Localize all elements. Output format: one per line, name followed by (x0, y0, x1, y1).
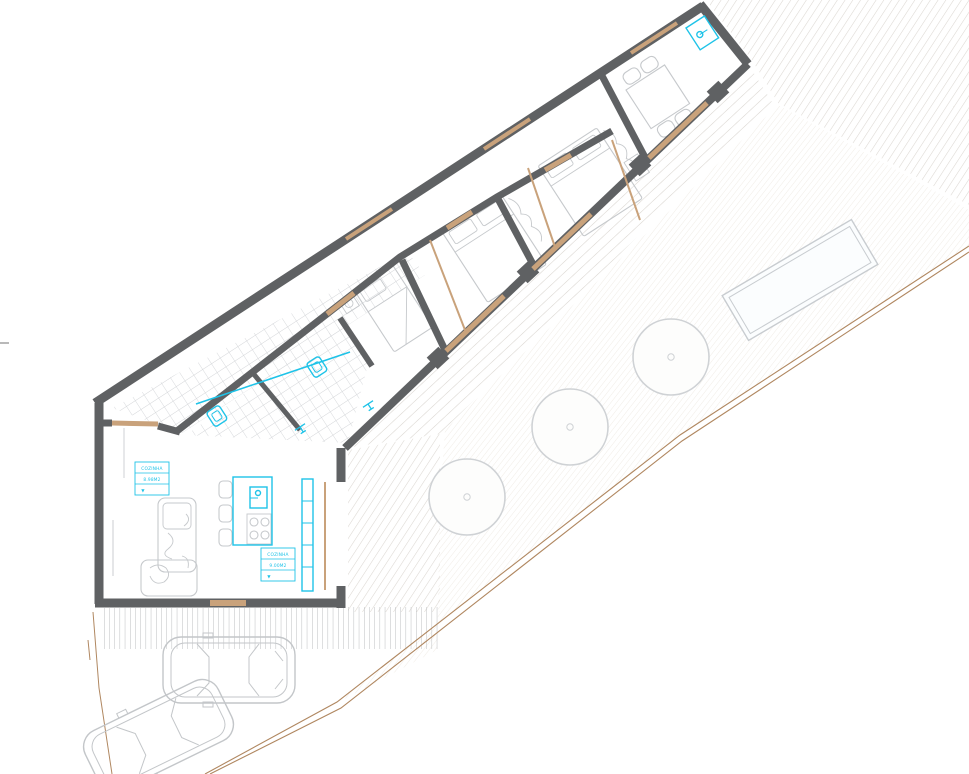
floor-plan-page: COZINHA 8.98M2 ▼ COZINHA 9.00M2 ▼ (0, 0, 969, 774)
entry-door (112, 423, 158, 424)
room-label-2-area: 9.00M2 (269, 563, 286, 569)
room-label-box-1: COZINHA 8.98M2 ▼ (135, 462, 169, 495)
room-label-1-symbol: ▼ (141, 489, 145, 494)
car-2 (75, 669, 241, 774)
room-label-2-symbol: ▼ (267, 575, 271, 580)
room-label-box-2: COZINHA 9.00M2 ▼ (261, 548, 295, 581)
floor-plan-canvas: COZINHA 8.98M2 ▼ COZINHA 9.00M2 ▼ (0, 0, 969, 774)
room-label-1-name: COZINHA (141, 466, 162, 472)
room-label-1-area: 8.98M2 (143, 477, 160, 483)
deck-living-east (348, 434, 440, 612)
room-label-2-name: COZINHA (267, 552, 288, 558)
